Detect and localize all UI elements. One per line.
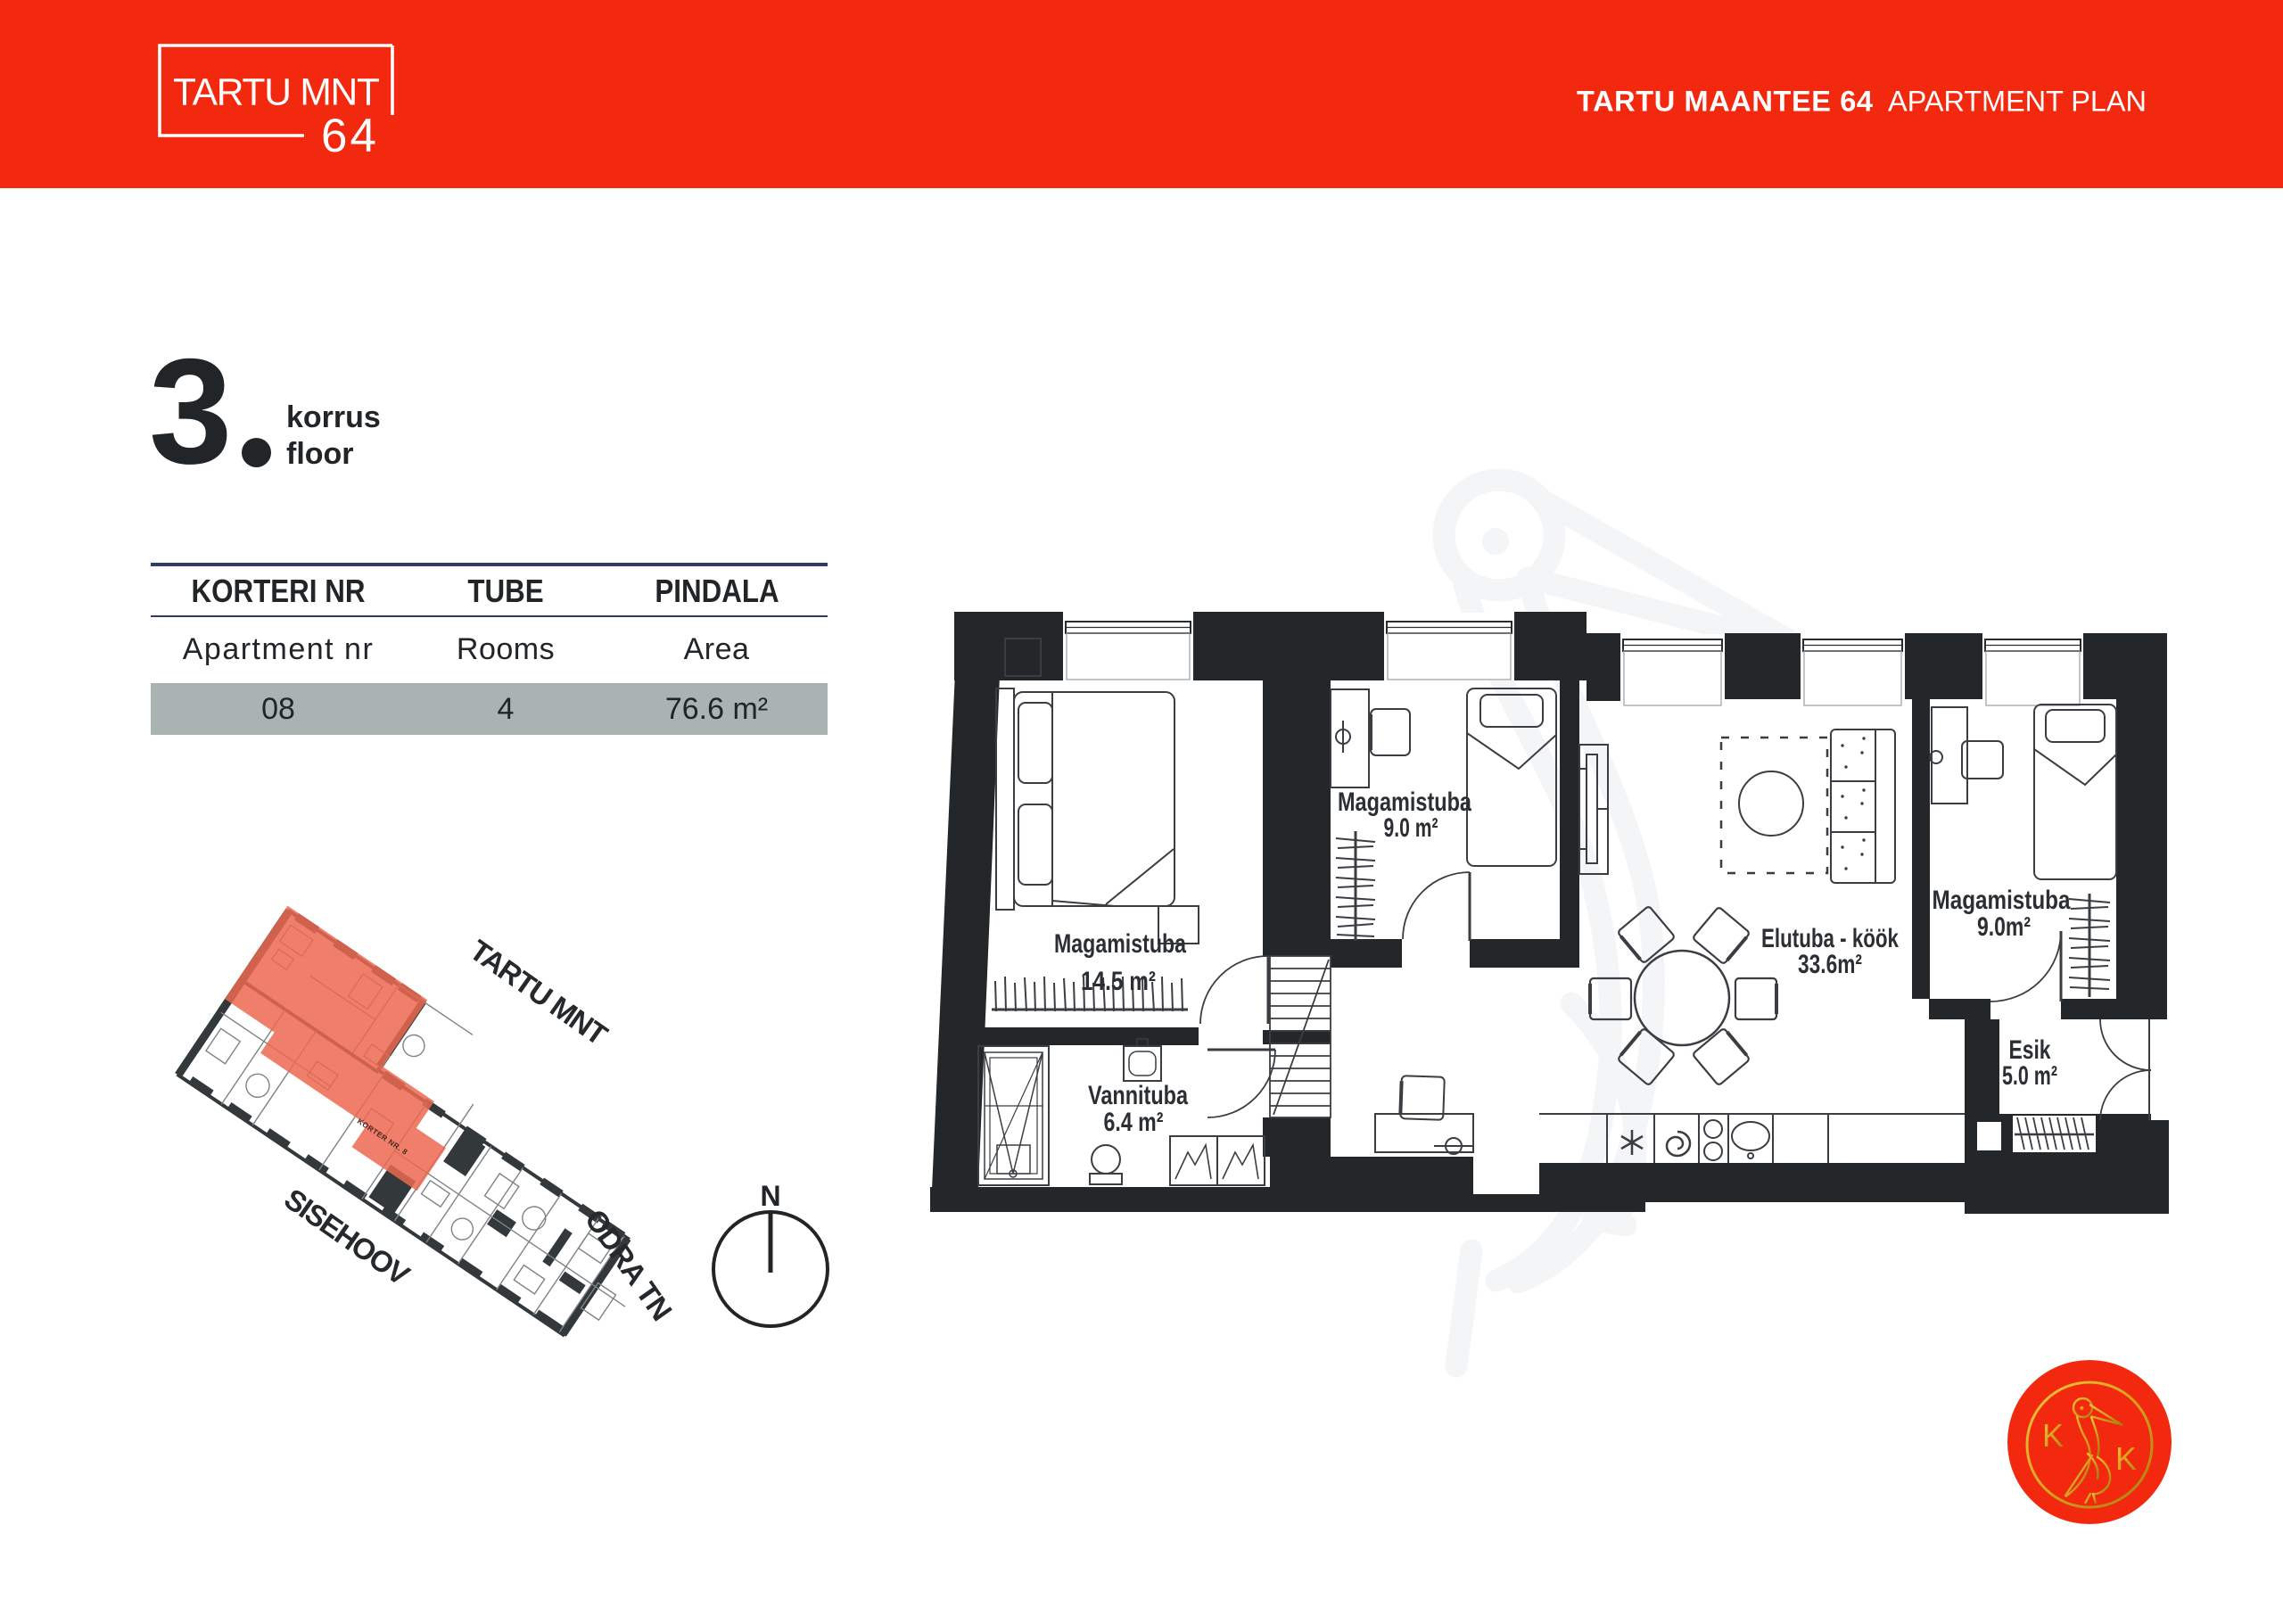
svg-text:Magamistuba: Magamistuba bbox=[1933, 886, 2071, 915]
svg-text:6.4 m²: 6.4 m² bbox=[1104, 1108, 1164, 1137]
svg-text:Vannituba: Vannituba bbox=[1088, 1081, 1188, 1110]
svg-text:K: K bbox=[2115, 1440, 2137, 1477]
svg-text:33.6m²: 33.6m² bbox=[1798, 950, 1862, 979]
svg-text:Magamistuba: Magamistuba bbox=[1054, 929, 1186, 959]
svg-text:14.5 m²: 14.5 m² bbox=[1081, 967, 1156, 996]
svg-text:5.0 m²: 5.0 m² bbox=[2002, 1061, 2057, 1091]
svg-text:9.0m²: 9.0m² bbox=[1977, 912, 2031, 942]
svg-text:TARTU MNT: TARTU MNT bbox=[464, 933, 618, 1054]
svg-text:9.0 m²: 9.0 m² bbox=[1384, 813, 1438, 843]
svg-text:K: K bbox=[2042, 1417, 2064, 1454]
